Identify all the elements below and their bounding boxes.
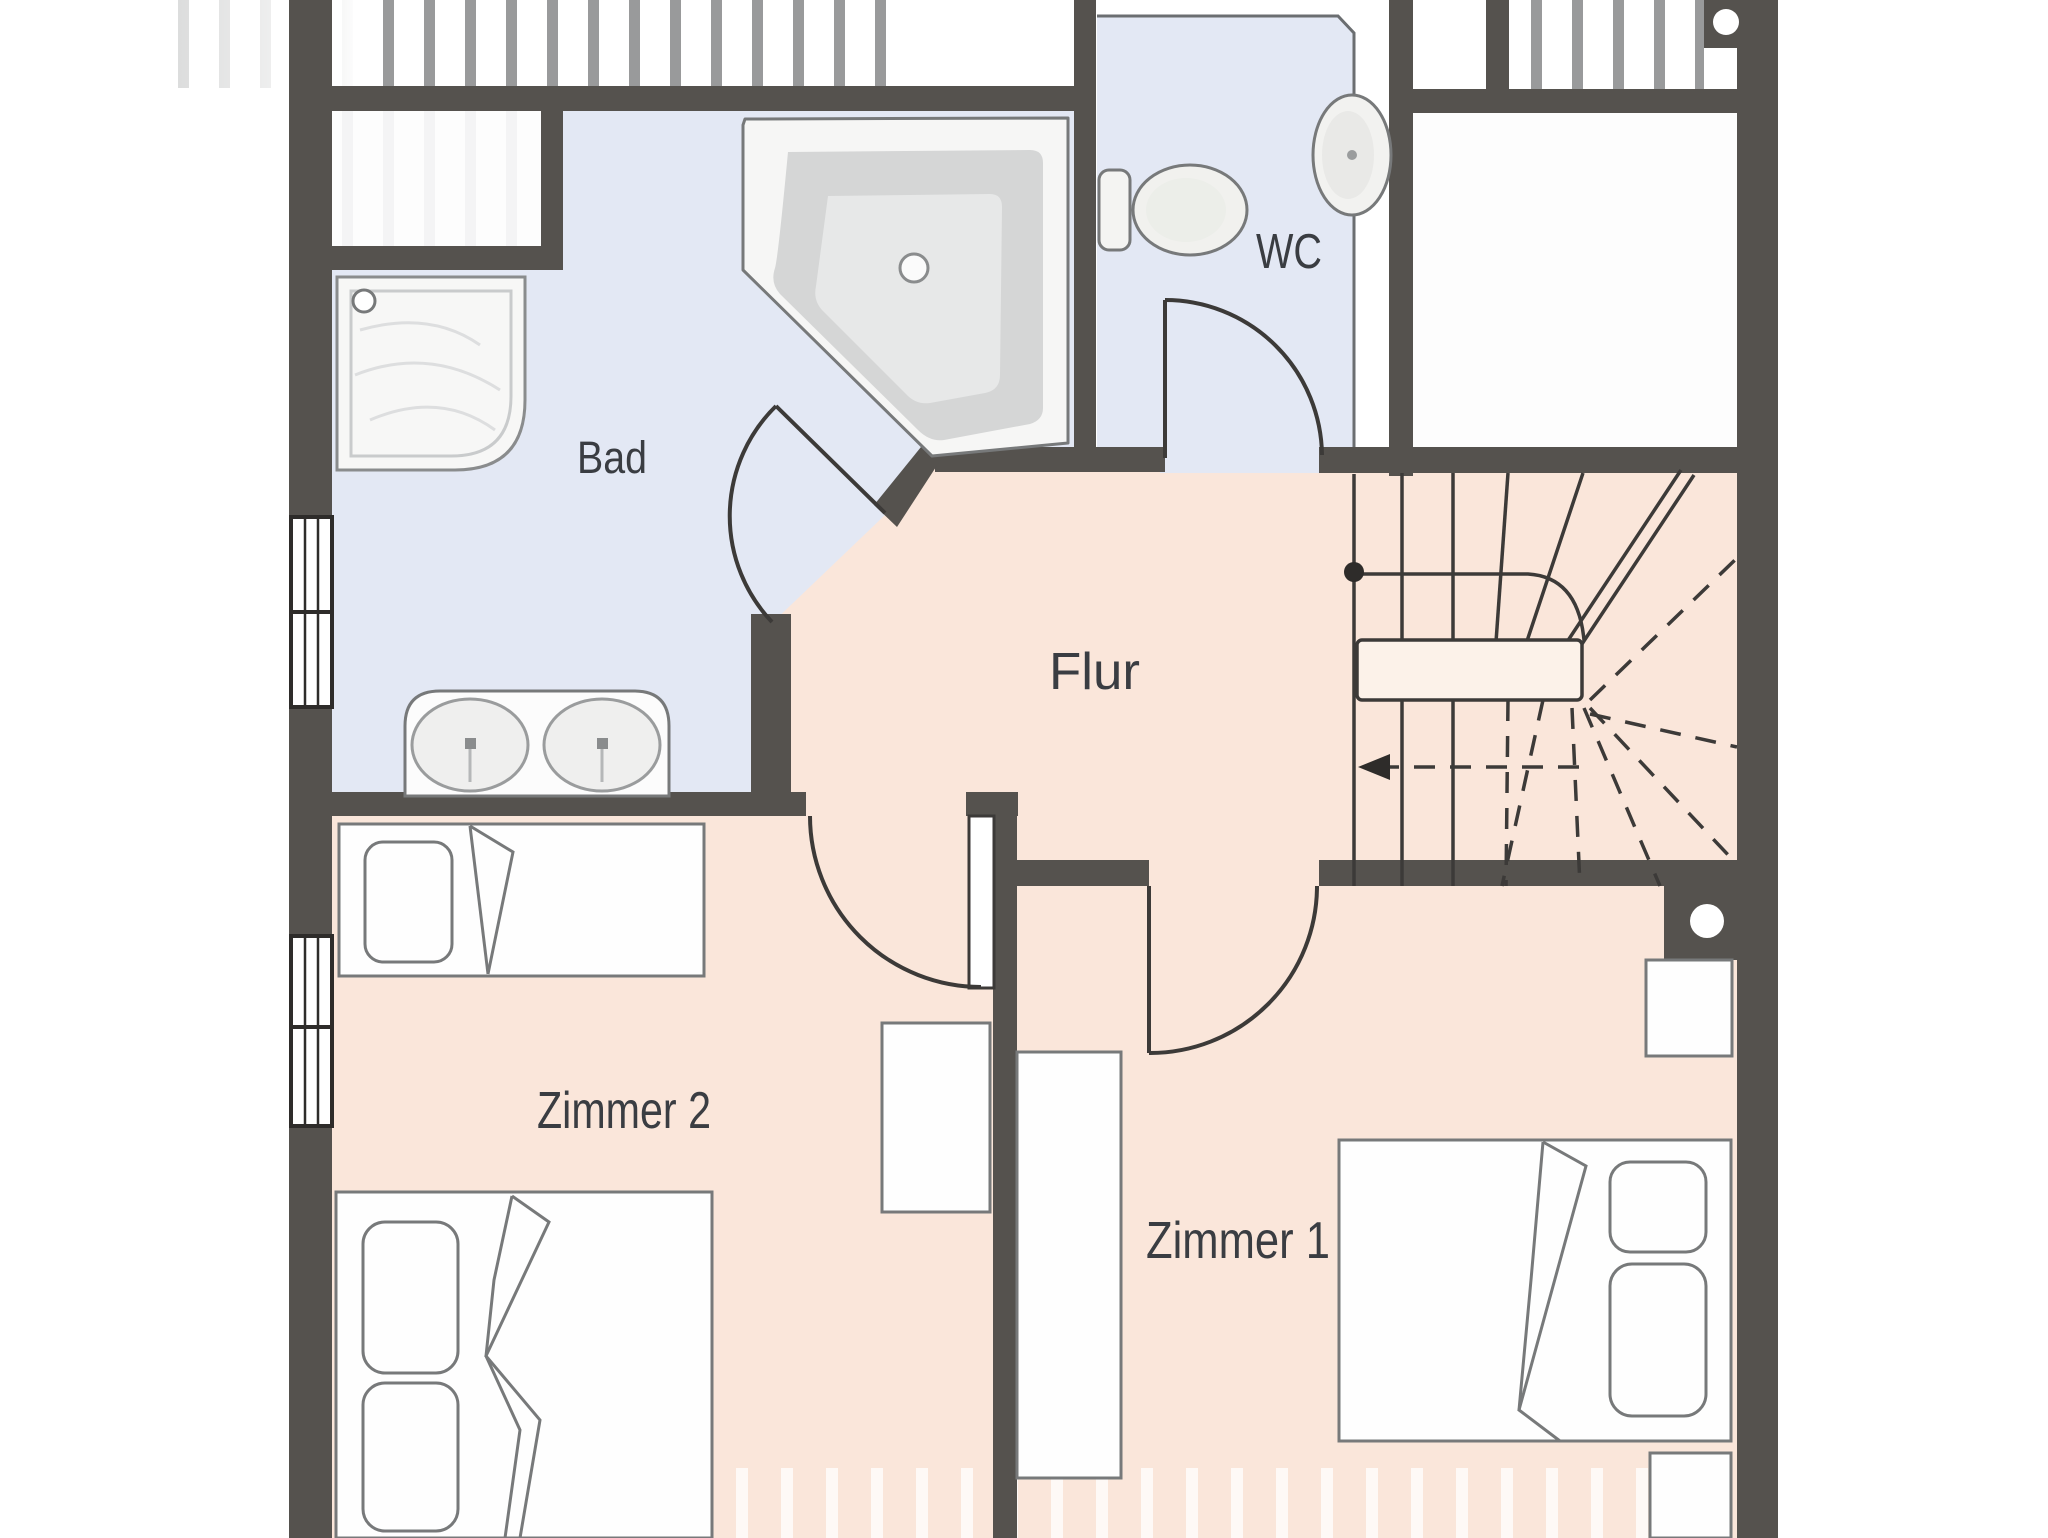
svg-text:Zimmer 2: Zimmer 2 <box>537 1082 711 1140</box>
svg-text:Flur: Flur <box>1049 643 1140 701</box>
svg-text:WC: WC <box>1256 225 1322 279</box>
svg-text:Bad: Bad <box>577 432 647 483</box>
svg-text:Zimmer 1: Zimmer 1 <box>1146 1212 1330 1270</box>
